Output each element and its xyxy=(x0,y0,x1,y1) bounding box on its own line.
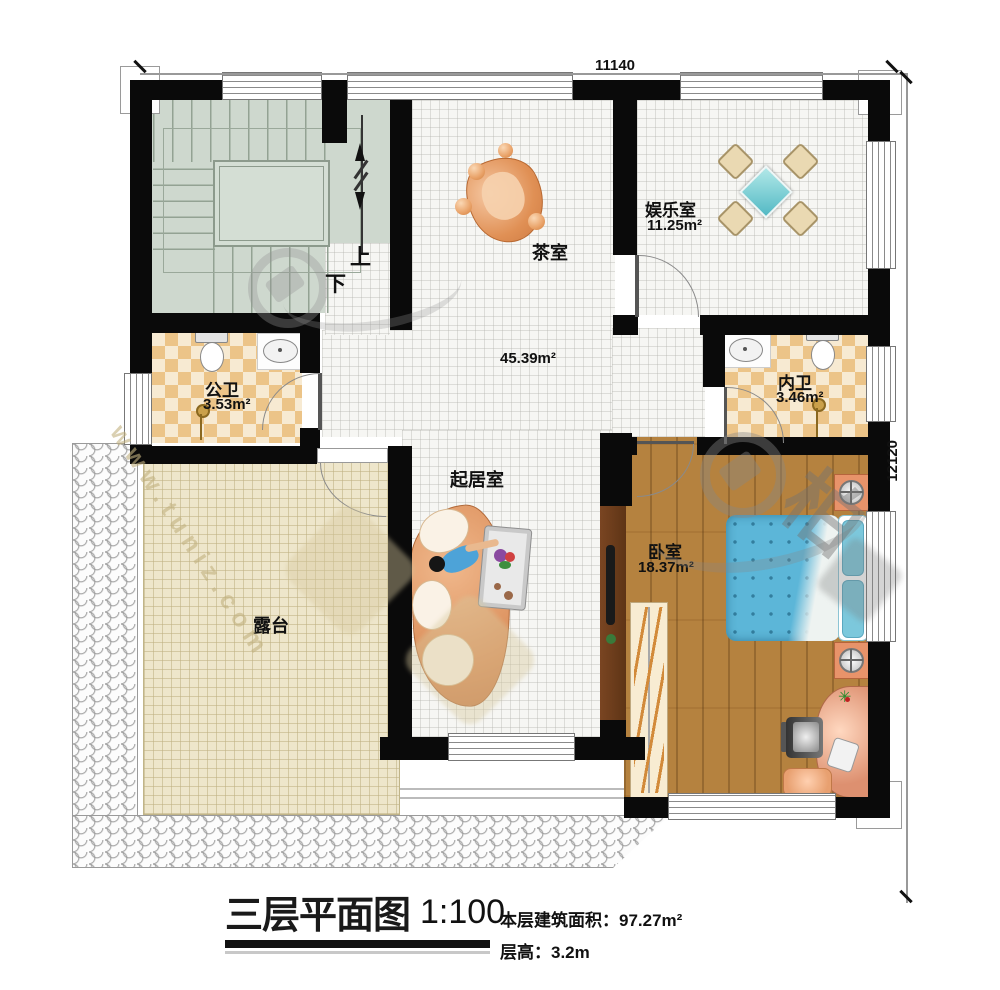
window-publicbath-left xyxy=(124,373,152,445)
room-label-living: 起居室 xyxy=(450,466,504,492)
wall-pier-top xyxy=(322,80,347,143)
wall-living-west xyxy=(388,446,412,760)
dimension-line-top xyxy=(140,73,906,75)
wardrobe-hangers xyxy=(634,607,664,793)
person-head xyxy=(429,556,445,572)
stair-up-label: 上 xyxy=(350,241,371,271)
wall-tea-ent xyxy=(613,97,637,255)
nightstand xyxy=(834,642,869,679)
wardrobe xyxy=(630,602,668,798)
sink-drain-dot xyxy=(278,348,282,352)
floor-drain-stem xyxy=(200,414,202,440)
ledge-line xyxy=(380,797,645,799)
floor-plan-page: { "dimensions": { "width_mm": "11140", "… xyxy=(0,0,1000,990)
floor-drain-stem xyxy=(816,408,818,438)
window-ent-top xyxy=(680,72,823,100)
title-underline-thick xyxy=(225,940,490,948)
table-bowl xyxy=(504,591,513,600)
balcony-ledge xyxy=(380,760,645,815)
title-underline-thin xyxy=(225,951,490,954)
window-ent-right xyxy=(866,141,896,269)
drawing-title: 三层平面图 xyxy=(225,884,410,939)
floor-height-text: 层高：3.2m xyxy=(500,938,590,963)
lamp-cross-h xyxy=(840,491,863,493)
bedroom-area-label: 18.37m² xyxy=(638,559,694,576)
room-label-tea: 茶室 xyxy=(532,239,568,265)
wall-publicbath-east-b xyxy=(300,428,320,448)
tea-stool xyxy=(468,163,485,180)
window-bedroom-right xyxy=(866,511,896,642)
wall-publicbath-east-a xyxy=(300,333,320,373)
window-tea-top xyxy=(347,72,573,100)
stair-direction-line xyxy=(361,115,363,255)
title-block: 三层平面图 1:100 本层建筑面积：97.27m² 层高：3.2m xyxy=(0,880,1000,990)
monitor-screen xyxy=(793,722,819,752)
wall-ent-south-b xyxy=(700,315,868,335)
wall-ent-south-a xyxy=(613,315,638,335)
window-stair-top xyxy=(222,72,322,100)
flower-leaves xyxy=(499,561,511,569)
toilet-icon xyxy=(200,342,224,372)
entertainment-area-label: 11.25m² xyxy=(647,217,702,234)
wall-privatebath-west xyxy=(703,315,725,387)
living-area-label: 45.39m² xyxy=(500,350,556,367)
table-bowl xyxy=(494,583,501,590)
toilet-icon xyxy=(811,340,835,370)
sofa-cushion xyxy=(412,580,452,630)
tea-stool xyxy=(455,198,472,215)
cabinet-plant xyxy=(606,634,616,644)
private-bath-area-label: 3.46m² xyxy=(776,389,824,406)
tea-stool xyxy=(498,143,513,158)
drawing-scale: 1:100 xyxy=(420,893,505,932)
ledge-line xyxy=(380,788,645,790)
window-privatebath-right xyxy=(866,346,896,422)
dimension-height-label: 12120 xyxy=(884,440,901,482)
roof-tile-strip-bottom xyxy=(72,815,673,868)
lamp-cross-h xyxy=(840,659,863,661)
dimension-width-label: 11140 xyxy=(580,57,650,74)
desk-plant-flower xyxy=(845,697,850,702)
dimension-line-right xyxy=(906,73,908,903)
pillow xyxy=(842,580,864,638)
window-bedroom-bottom xyxy=(668,793,836,820)
corridor-east-floor xyxy=(612,328,705,437)
wall-living-bedroom-a xyxy=(600,433,632,506)
stair-down-label: 下 xyxy=(325,268,346,298)
pillow xyxy=(842,520,864,576)
room-label-terrace: 露台 xyxy=(253,612,289,638)
wall-stair-tea xyxy=(390,93,412,330)
roof-tile-strip-left xyxy=(72,443,138,863)
tea-stool xyxy=(528,213,545,230)
terrace-floor xyxy=(143,461,400,815)
corridor-floor xyxy=(322,330,615,437)
stair-direction-arrow-up xyxy=(355,143,365,161)
nightstand xyxy=(834,474,869,511)
bed-sheet-fold xyxy=(782,515,840,641)
window-living-bottom xyxy=(448,733,575,761)
bed-headboard xyxy=(838,515,868,641)
door-leaf-terrace xyxy=(317,448,388,463)
floor-area-text: 本层建筑面积：97.27m² xyxy=(500,906,682,931)
wall-stair-south xyxy=(130,313,320,333)
monitor-icon xyxy=(786,717,823,758)
wall-terrace-top xyxy=(130,446,317,464)
tv-icon xyxy=(606,545,615,625)
stair-landing xyxy=(213,160,330,247)
stair-direction-arrow-down xyxy=(355,192,365,210)
sink-drain-dot xyxy=(743,347,747,351)
public-bath-area-label: 3.53m² xyxy=(203,396,251,413)
